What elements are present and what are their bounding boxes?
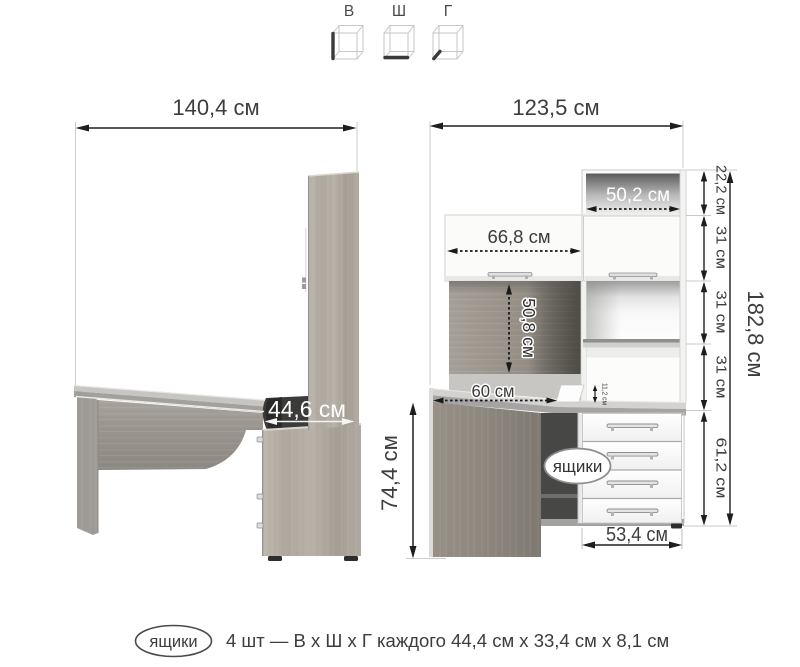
svg-text:60 см: 60 см: [472, 381, 515, 401]
svg-text:31 см: 31 см: [713, 226, 730, 269]
svg-text:31 см: 31 см: [713, 291, 730, 334]
svg-text:22,2 см: 22,2 см: [713, 165, 730, 215]
svg-text:В: В: [344, 3, 354, 20]
svg-text:31 см: 31 см: [713, 356, 730, 399]
svg-text:11,2 см: 11,2 см: [601, 383, 610, 405]
svg-text:123,5 см: 123,5 см: [512, 95, 599, 120]
svg-text:74,4 см: 74,4 см: [377, 435, 402, 511]
svg-text:4 шт — В х Ш х Г каждого 44,4: 4 шт — В х Ш х Г каждого 44,4 см х 33,4 …: [226, 630, 669, 651]
svg-text:53,4 см: 53,4 см: [606, 524, 668, 546]
svg-text:ящики: ящики: [149, 633, 197, 651]
svg-text:Г: Г: [444, 3, 453, 20]
svg-text:ящики: ящики: [553, 457, 603, 476]
svg-text:66,8 см: 66,8 см: [487, 226, 550, 247]
svg-text:44,6 см: 44,6 см: [268, 396, 346, 422]
svg-text:50,8 см: 50,8 см: [519, 298, 539, 358]
svg-text:182,8 см: 182,8 см: [743, 291, 768, 378]
svg-text:50,2 см: 50,2 см: [606, 184, 670, 206]
svg-text:Ш: Ш: [392, 3, 406, 20]
svg-text:61,2 см: 61,2 см: [713, 438, 730, 499]
svg-text:140,4 см: 140,4 см: [172, 95, 259, 120]
